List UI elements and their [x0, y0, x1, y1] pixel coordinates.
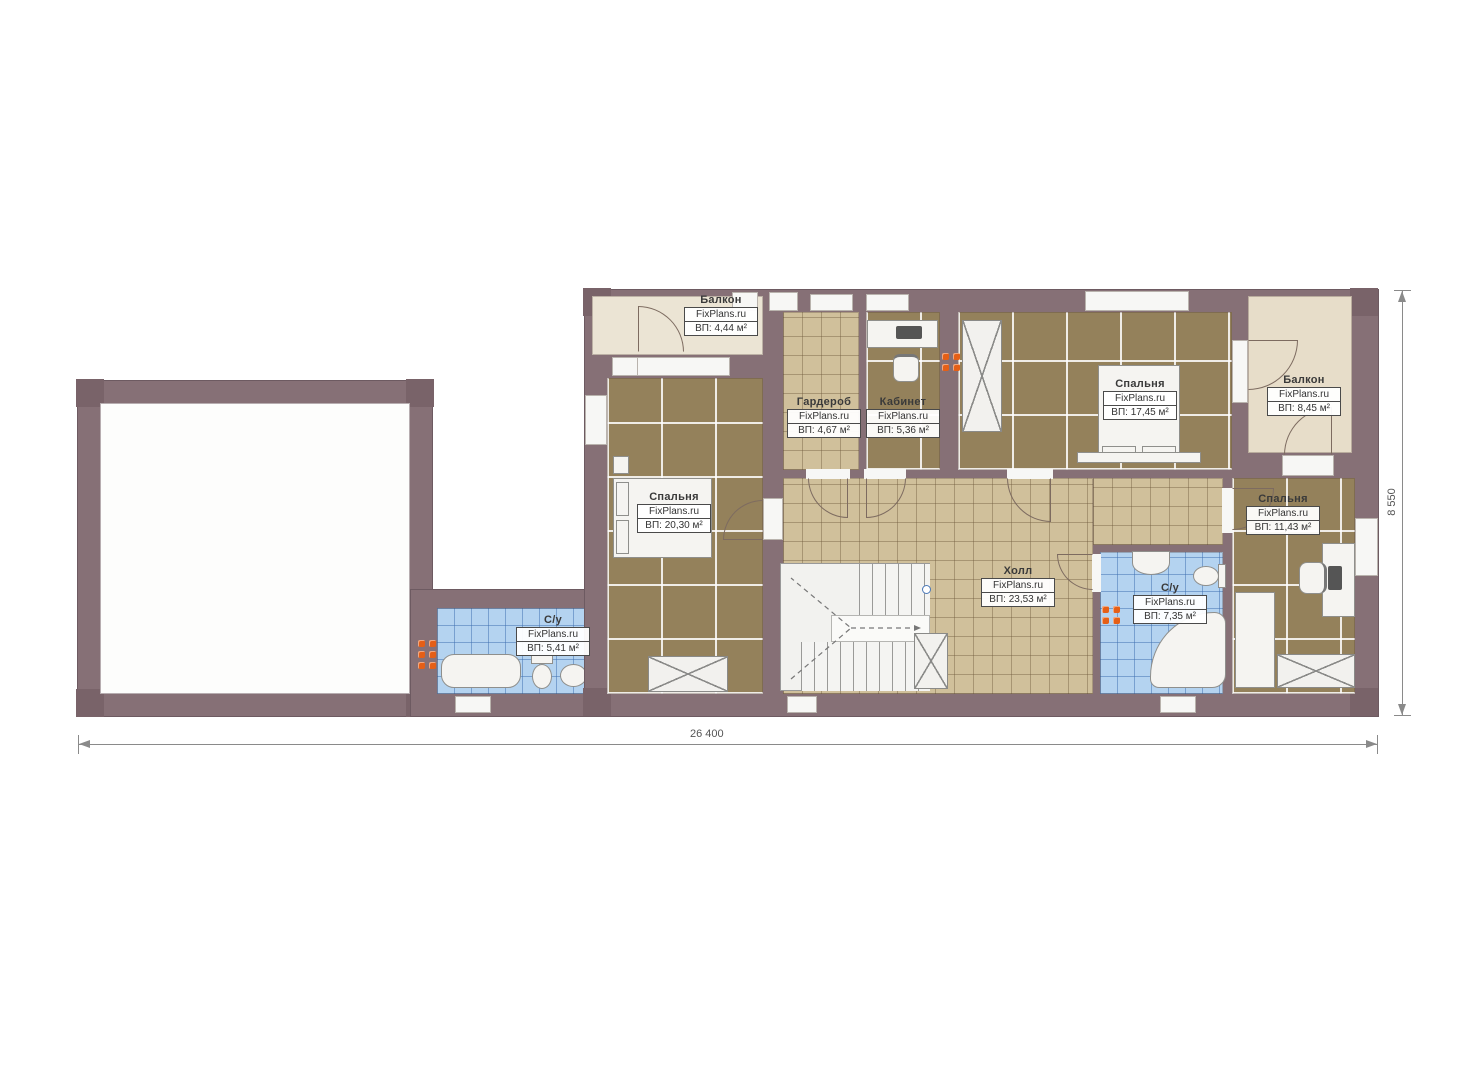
- room-brand: FixPlans.ru: [1134, 596, 1206, 609]
- room-name: Гардероб: [787, 396, 861, 408]
- pillow: [616, 482, 629, 516]
- room-area: ВП: 5,36 м²: [867, 423, 939, 437]
- room-area: ВП: 8,45 м²: [1268, 401, 1340, 415]
- annex-interior: [100, 403, 410, 694]
- room-name: Балкон: [684, 294, 758, 306]
- room-area: ВП: 7,35 м²: [1134, 609, 1206, 623]
- window-bottom-bath-big: [1160, 696, 1196, 713]
- room-area-box: FixPlans.ru ВП: 11,43 м²: [1246, 506, 1320, 535]
- staircase: [780, 563, 930, 691]
- doorway-bedroom-20-hall: [763, 498, 783, 540]
- dimension-tick: [1377, 735, 1378, 754]
- dimension-arrow-up: [1398, 291, 1406, 302]
- room-area-box: FixPlans.ru ВП: 8,45 м²: [1267, 387, 1341, 416]
- nightstand: [613, 456, 629, 474]
- floor-plan-canvas: Балкон FixPlans.ru ВП: 4,44 м² Гардероб …: [0, 0, 1474, 1080]
- room-area-box: FixPlans.ru ВП: 20,30 м²: [637, 504, 711, 533]
- stair-post-marker: [922, 585, 931, 594]
- room-area: ВП: 4,67 м²: [788, 423, 860, 437]
- room-label-bedroom-11: Спальня FixPlans.ru ВП: 11,43 м²: [1246, 493, 1320, 535]
- radiator-symbol: [942, 353, 960, 371]
- bench-bedroom-17: [1077, 452, 1201, 463]
- room-name: Спальня: [1103, 378, 1177, 390]
- dimension-line-right: [1402, 290, 1403, 716]
- room-area-box: FixPlans.ru ВП: 5,41 м²: [516, 627, 590, 656]
- bathtub: [441, 654, 521, 688]
- window-bath-small: [455, 696, 491, 713]
- chair-bedroom-11: [1299, 562, 1327, 594]
- room-brand: FixPlans.ru: [638, 505, 710, 518]
- hall-corridor-floor: [1093, 478, 1223, 545]
- room-label-bedroom-20: Спальня FixPlans.ru ВП: 20,30 м²: [637, 491, 711, 533]
- doorway-hall-bath-big: [1092, 554, 1101, 592]
- room-area-box: FixPlans.ru ВП: 4,67 м²: [787, 409, 861, 438]
- room-brand: FixPlans.ru: [1104, 392, 1176, 405]
- dimension-label-right: 8 550: [1386, 472, 1398, 532]
- stair-newel-box: [914, 633, 948, 689]
- window-top-bedroom-17: [1085, 291, 1189, 311]
- room-label-bedroom-17: Спальня FixPlans.ru ВП: 17,45 м²: [1103, 378, 1177, 420]
- dimension-line-bottom: [78, 744, 1378, 745]
- dimension-label-bottom: 26 400: [690, 728, 724, 740]
- room-label-office: Кабинет FixPlans.ru ВП: 5,36 м²: [866, 396, 940, 438]
- window-top-2: [769, 292, 798, 311]
- room-label-hall: Холл FixPlans.ru ВП: 23,53 м²: [981, 565, 1055, 607]
- window-east-bedroom-11: [1355, 518, 1378, 576]
- room-name: Холл: [981, 565, 1055, 577]
- dimension-arrow-left: [79, 740, 90, 748]
- room-name: Спальня: [1246, 493, 1320, 505]
- room-brand: FixPlans.ru: [788, 410, 860, 423]
- window-west-bedroom-20: [585, 395, 607, 445]
- doorway-bedroom-17-balcony: [1232, 340, 1248, 403]
- room-area-box: FixPlans.ru ВП: 5,36 м²: [866, 409, 940, 438]
- room-area: ВП: 23,53 м²: [982, 592, 1054, 606]
- window-band-balcony-left: [632, 357, 730, 376]
- dimension-arrow-down: [1398, 704, 1406, 715]
- room-name: С/у: [1133, 582, 1207, 594]
- room-brand: FixPlans.ru: [867, 410, 939, 423]
- doorway-balcony-right-bottom: [1282, 455, 1334, 476]
- room-area-box: FixPlans.ru ВП: 4,44 м²: [684, 307, 758, 336]
- room-label-bath-small: С/у FixPlans.ru ВП: 5,41 м²: [516, 614, 590, 656]
- room-label-balcony-right: Балкон FixPlans.ru ВП: 8,45 м²: [1267, 374, 1341, 416]
- sink: [560, 664, 587, 687]
- window-top-office: [866, 294, 909, 311]
- room-area-box: FixPlans.ru ВП: 23,53 м²: [981, 578, 1055, 607]
- toilet-tank-bath-big: [1218, 564, 1226, 588]
- room-brand: FixPlans.ru: [982, 579, 1054, 592]
- radiator-symbol: [1102, 606, 1120, 624]
- room-area-box: FixPlans.ru ВП: 7,35 м²: [1133, 595, 1207, 624]
- chair-office: [893, 354, 919, 382]
- room-area: ВП: 5,41 м²: [517, 641, 589, 655]
- dimension-tick: [1394, 715, 1411, 716]
- main-corner-tr: [1350, 288, 1378, 316]
- room-label-balcony-left: Балкон FixPlans.ru ВП: 4,44 м²: [684, 294, 758, 336]
- room-area: ВП: 17,45 м²: [1104, 405, 1176, 419]
- room-brand: FixPlans.ru: [1247, 507, 1319, 520]
- room-label-wardrobe: Гардероб FixPlans.ru ВП: 4,67 м²: [787, 396, 861, 438]
- annex-corner-tr: [406, 379, 434, 407]
- room-brand: FixPlans.ru: [517, 628, 589, 641]
- wardrobe-box-bedroom-11: [1277, 654, 1355, 688]
- monitor-bedroom-11: [1328, 566, 1342, 590]
- room-brand: FixPlans.ru: [1268, 388, 1340, 401]
- stair-direction-lines: [781, 564, 931, 692]
- monitor-office: [896, 326, 922, 339]
- window-bottom-hall: [787, 696, 817, 713]
- room-area: ВП: 4,44 м²: [685, 321, 757, 335]
- radiator-symbol: [418, 640, 436, 669]
- room-area-box: FixPlans.ru ВП: 17,45 м²: [1103, 391, 1177, 420]
- room-area: ВП: 11,43 м²: [1247, 520, 1319, 534]
- pillow: [616, 520, 629, 554]
- toilet-bowl: [532, 664, 552, 689]
- window-top-wardrobe: [810, 294, 853, 311]
- cabinet-bedroom-11: [1235, 592, 1275, 688]
- wardrobe-box-bedroom-17: [962, 320, 1002, 432]
- room-name: Спальня: [637, 491, 711, 503]
- room-name: Балкон: [1267, 374, 1341, 386]
- room-area: ВП: 20,30 м²: [638, 518, 710, 532]
- toilet-tank: [531, 655, 553, 664]
- wardrobe-floor: [783, 312, 859, 470]
- dimension-arrow-right: [1366, 740, 1377, 748]
- room-label-bath-big: С/у FixPlans.ru ВП: 7,35 м²: [1133, 582, 1207, 624]
- room-brand: FixPlans.ru: [685, 308, 757, 321]
- room-name: С/у: [516, 614, 590, 626]
- doorway-balcony-left: [612, 357, 638, 376]
- sink-bath-big: [1132, 551, 1170, 575]
- room-name: Кабинет: [866, 396, 940, 408]
- wardrobe-box-bedroom-20: [648, 656, 728, 692]
